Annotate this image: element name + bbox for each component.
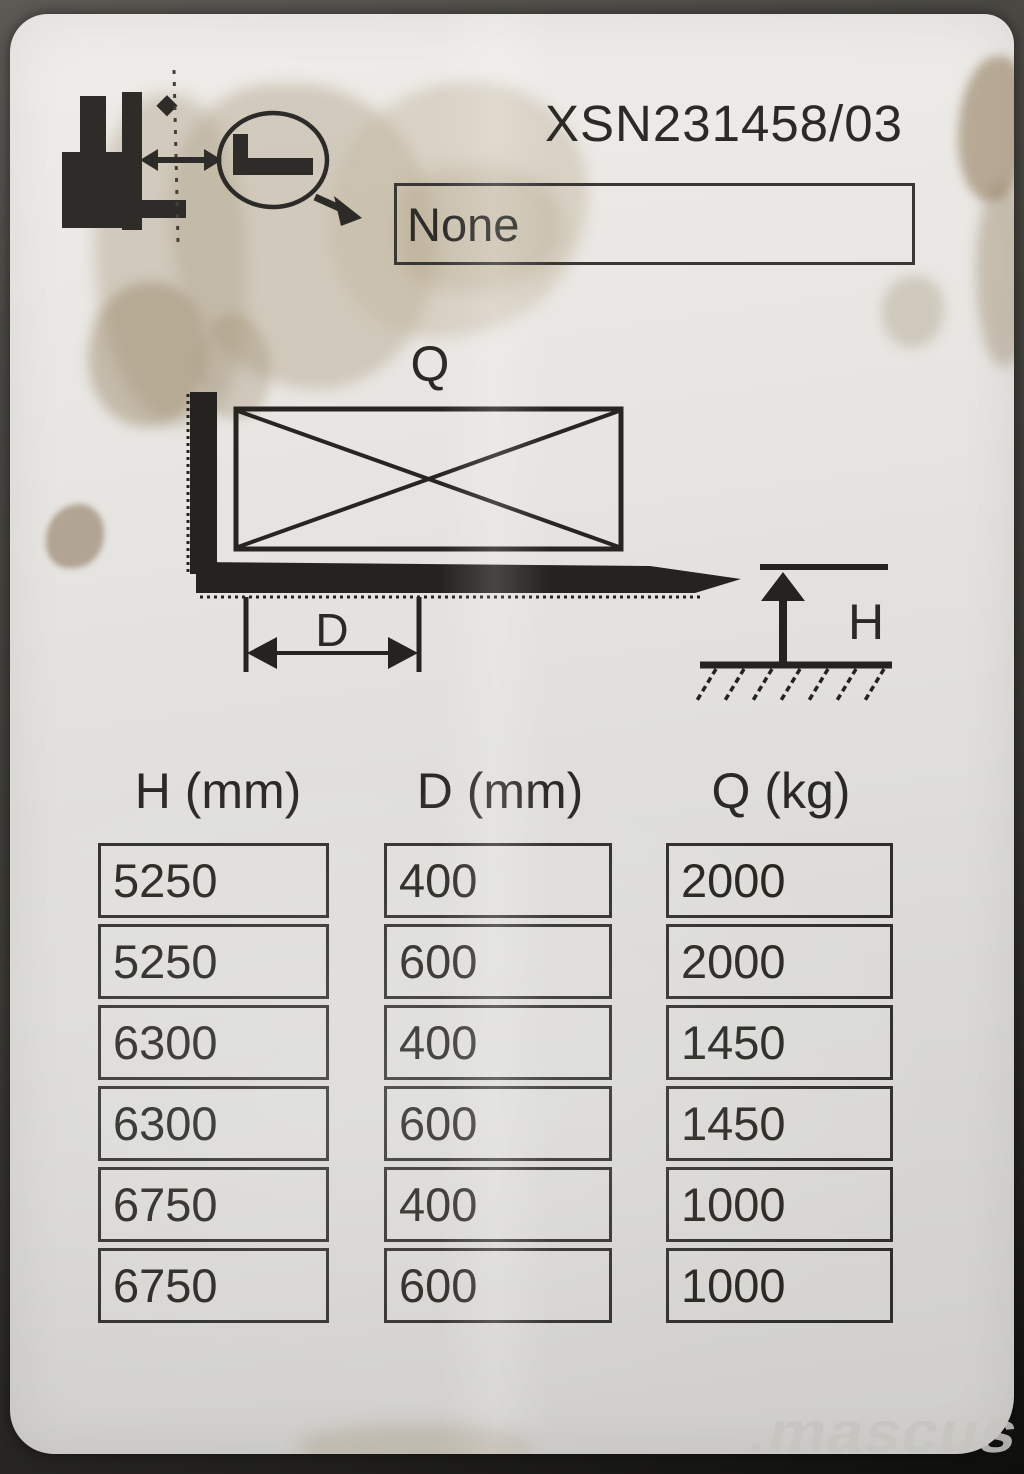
worn-forklift-icon xyxy=(96,198,130,218)
table-cell-height: 5250 xyxy=(98,924,329,999)
table-cell-load-center: 400 xyxy=(384,843,612,918)
edge-dirt-stain xyxy=(976,182,1014,367)
attachment-field-box: None xyxy=(394,183,915,265)
table-cell-height: 6300 xyxy=(98,1086,329,1161)
edge-dirt-stain xyxy=(958,56,1014,201)
table-cell-load-center: 600 xyxy=(384,1086,612,1161)
table-cell-height: 5250 xyxy=(98,843,329,918)
table-cell-capacity: 2000 xyxy=(666,843,893,918)
fork-magnifier-pictogram xyxy=(60,54,390,254)
table-cell-capacity: 1000 xyxy=(666,1167,893,1242)
table-cell-load-center: 400 xyxy=(384,1167,612,1242)
table-cell-load-center: 400 xyxy=(384,1005,612,1080)
table-cell-load-center: 600 xyxy=(384,924,612,999)
col-header-capacity: Q (kg) xyxy=(666,762,896,820)
dirt-speck xyxy=(46,504,104,568)
table-cell-capacity: 1000 xyxy=(666,1248,893,1323)
table-cell-height: 6300 xyxy=(98,1005,329,1080)
ground-hatching xyxy=(696,669,884,702)
table-cell-height: 6750 xyxy=(98,1248,329,1323)
table-cell-height: 6750 xyxy=(98,1167,329,1242)
load-label: Q xyxy=(411,336,450,392)
dirt-stain xyxy=(298,1424,533,1454)
load-center-label: D xyxy=(315,604,348,656)
double-arrow-icon xyxy=(140,149,222,171)
col-header-load-center: D (mm) xyxy=(386,762,614,820)
table-cell-load-center: 600 xyxy=(384,1248,612,1323)
magnifier-icon xyxy=(219,113,362,226)
table-cell-capacity: 2000 xyxy=(666,924,893,999)
worn-forklift-icon xyxy=(140,200,186,218)
load-diagram: Q D xyxy=(150,325,910,720)
table-cell-capacity: 1450 xyxy=(666,1005,893,1080)
table-cell-capacity: 1450 xyxy=(666,1086,893,1161)
load-box-icon xyxy=(236,409,621,549)
worn-forklift-icon xyxy=(156,95,177,116)
col-header-height: H (mm) xyxy=(106,762,330,820)
lift-height-label: H xyxy=(848,594,884,650)
photo-backdrop: XSN231458/03 None xyxy=(0,0,1024,1474)
serial-number: XSN231458/03 xyxy=(545,94,925,153)
capacity-plate: XSN231458/03 None xyxy=(10,14,1014,1454)
mascus-watermark: .mascus xyxy=(742,1399,1024,1466)
attachment-field-value: None xyxy=(397,197,519,252)
worn-forklift-icon xyxy=(80,96,106,154)
